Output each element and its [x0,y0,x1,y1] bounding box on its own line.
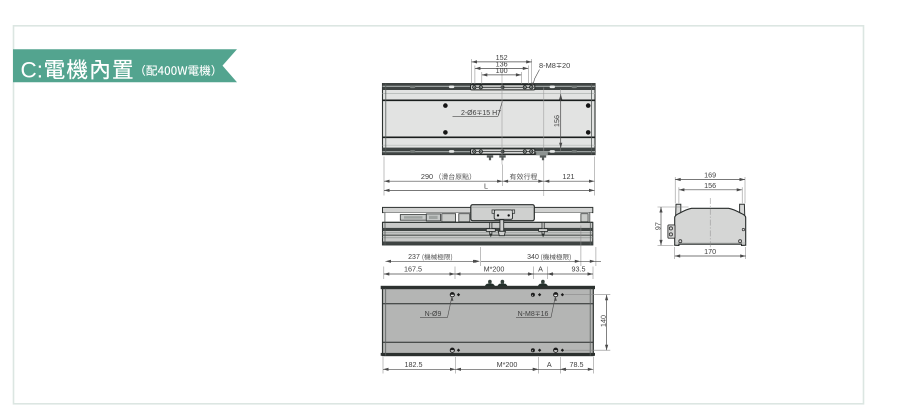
svg-text:N-M8∓16: N-M8∓16 [518,311,549,318]
svg-text:169: 169 [704,171,716,180]
svg-text:M*200: M*200 [497,360,518,369]
svg-text:340: 340 [527,254,539,261]
svg-text:100: 100 [496,66,508,75]
svg-text:182.5: 182.5 [405,360,423,369]
svg-text:93.5: 93.5 [572,265,586,274]
svg-text:167.5: 167.5 [404,265,422,274]
svg-text:156: 156 [704,181,716,190]
svg-text:A: A [547,360,552,369]
svg-text:8-M8∓20: 8-M8∓20 [539,61,570,70]
svg-text:237: 237 [408,254,420,261]
svg-text:M*200: M*200 [484,265,505,274]
svg-text:78.5: 78.5 [570,360,584,369]
svg-text:C:: C: [21,58,44,83]
svg-text:A: A [538,265,543,274]
svg-text:2-Ø6∓15 H7: 2-Ø6∓15 H7 [461,110,501,117]
svg-text:N-Ø9: N-Ø9 [425,311,442,318]
svg-text:290: 290 [421,172,433,181]
svg-text:170: 170 [704,247,716,256]
svg-text:L: L [484,182,488,191]
svg-text:121: 121 [562,172,574,181]
